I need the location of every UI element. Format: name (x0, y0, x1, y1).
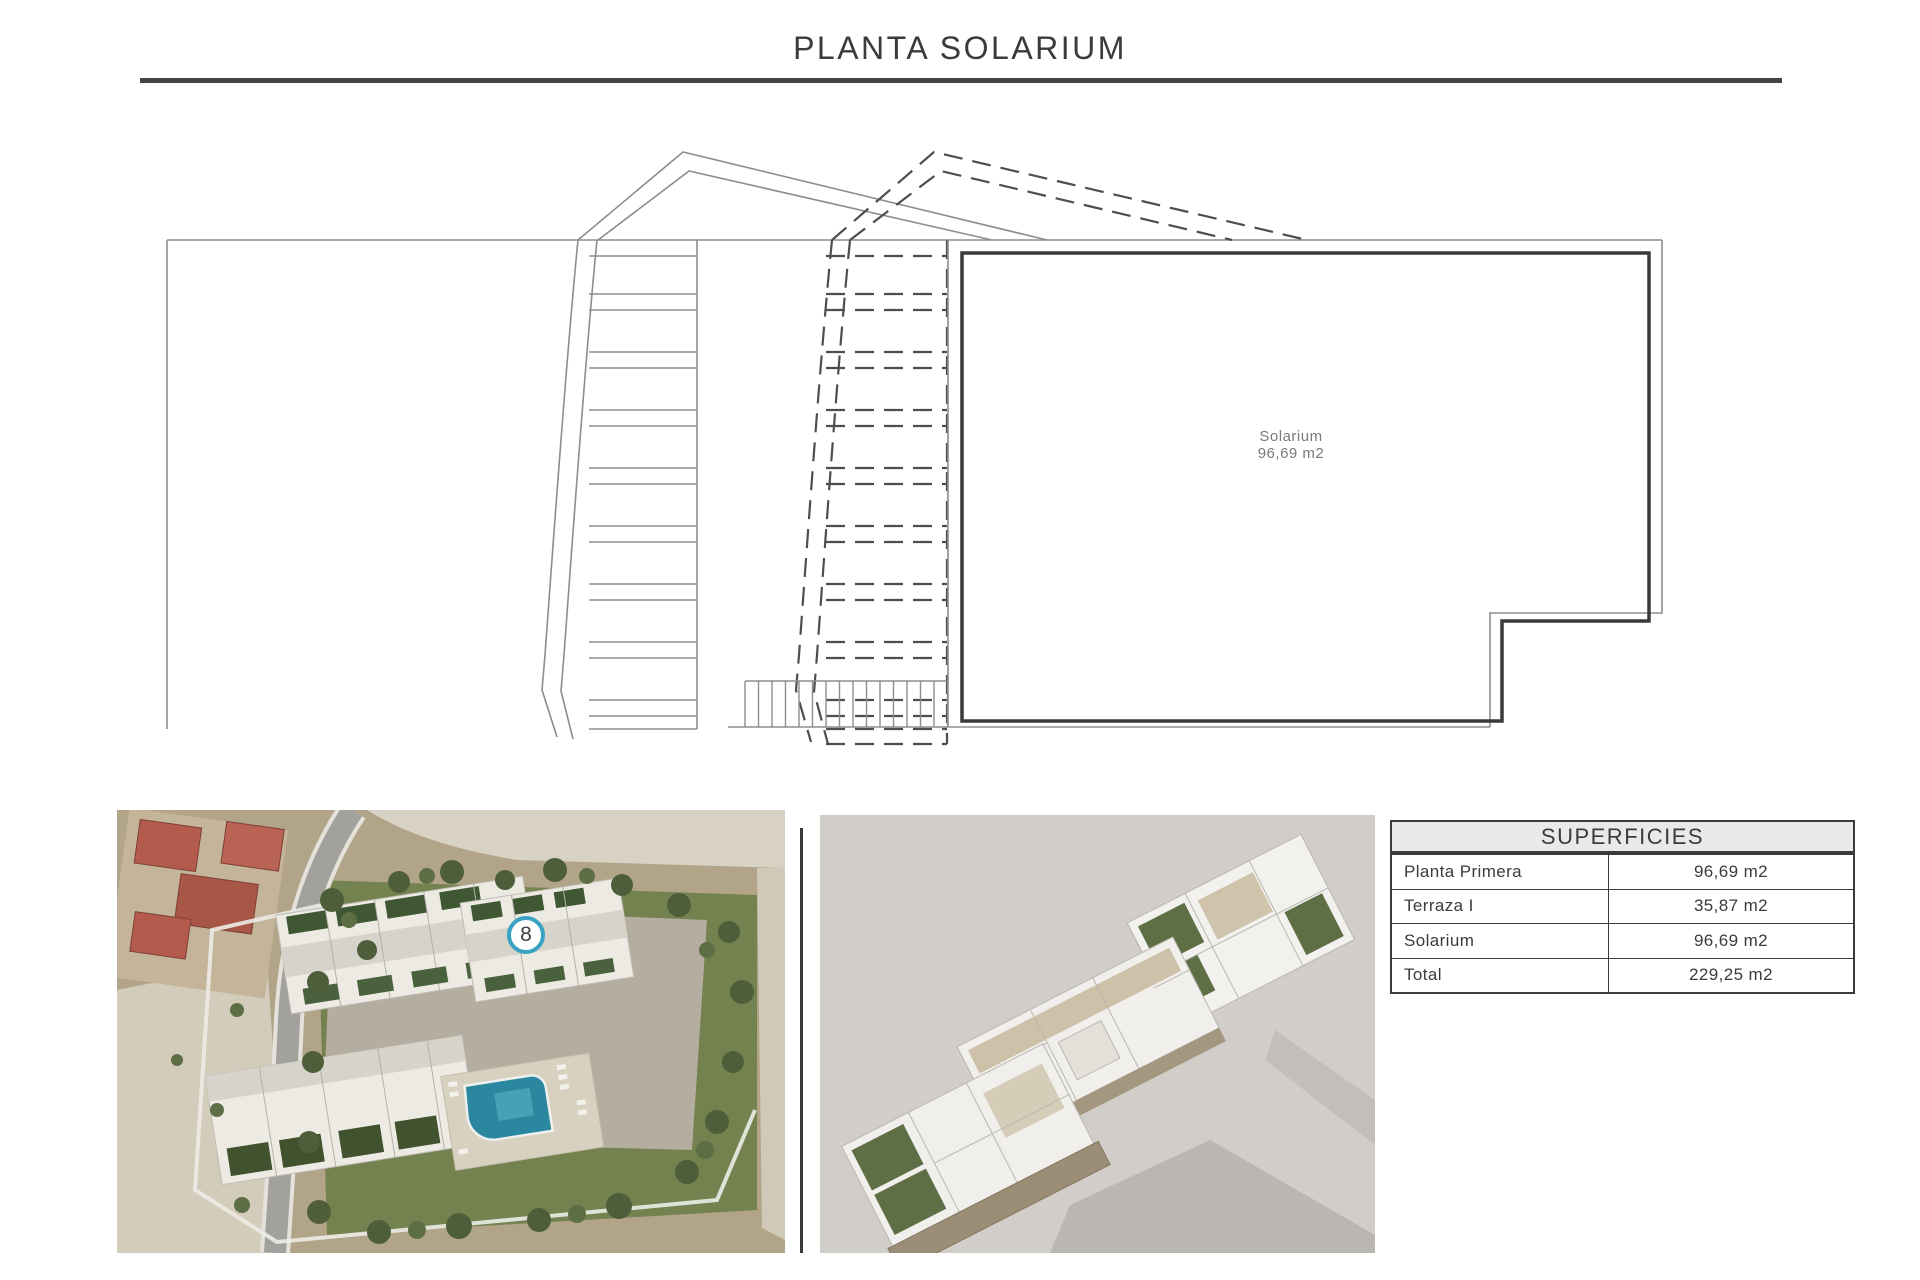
roof-gable-dashed (832, 152, 1307, 240)
floor-plan-drawing: Solarium 96,69 m2 (0, 0, 1920, 790)
solarium-outline (962, 253, 1649, 721)
solarium-label: Solarium (1259, 428, 1322, 445)
roof-gable-solid (578, 152, 1047, 240)
unit-number-badge: 8 (507, 916, 545, 954)
render-3d (820, 815, 1375, 1253)
table-row: Planta Primera 96,69 m2 (1392, 855, 1853, 889)
table-row: Terraza I 35,87 m2 (1392, 889, 1853, 924)
solarium-area-label: 96,69 m2 (1258, 445, 1325, 462)
staircase-dashed (796, 240, 947, 744)
stair-wavy-edge-outer (542, 240, 578, 737)
table-body: Planta Primera 96,69 m2 Terraza I 35,87 … (1390, 853, 1855, 994)
stair-treads-dashed (826, 256, 947, 744)
row-label: Terraza I (1392, 890, 1609, 924)
row-value: 96,69 m2 (1609, 855, 1853, 889)
superficies-table: SUPERFICIES Planta Primera 96,69 m2 Terr… (1390, 820, 1855, 994)
row-value: 35,87 m2 (1609, 890, 1853, 924)
aerial-photo: 8 (117, 810, 785, 1253)
table-row: Solarium 96,69 m2 (1392, 923, 1853, 958)
stair-dashed-wavy-inner (814, 240, 850, 744)
render-3d-illustration (820, 815, 1375, 1253)
comb-ticks (745, 681, 948, 727)
row-value: 229,25 m2 (1609, 959, 1853, 993)
plan-sheet-page: PLANTA SOLARIUM (0, 0, 1920, 1280)
row-label: Total (1392, 959, 1609, 993)
stair-treads (589, 256, 697, 729)
solarium-outer-boundary (948, 240, 1662, 727)
aerial-photo-illustration (117, 810, 785, 1253)
row-label: Solarium (1392, 924, 1609, 958)
table-header: SUPERFICIES (1390, 820, 1855, 853)
row-label: Planta Primera (1392, 855, 1609, 889)
row-value: 96,69 m2 (1609, 924, 1853, 958)
neighbor-buildings (117, 810, 288, 998)
table-row: Total 229,25 m2 (1392, 958, 1853, 993)
photo-render-divider (800, 828, 803, 1253)
stair-dashed-wavy-outer (796, 240, 832, 742)
unit-number: 8 (520, 923, 532, 947)
staircase-solid (542, 240, 697, 739)
lower-stair-comb (745, 681, 948, 727)
stair-wavy-edge-inner (561, 240, 597, 739)
